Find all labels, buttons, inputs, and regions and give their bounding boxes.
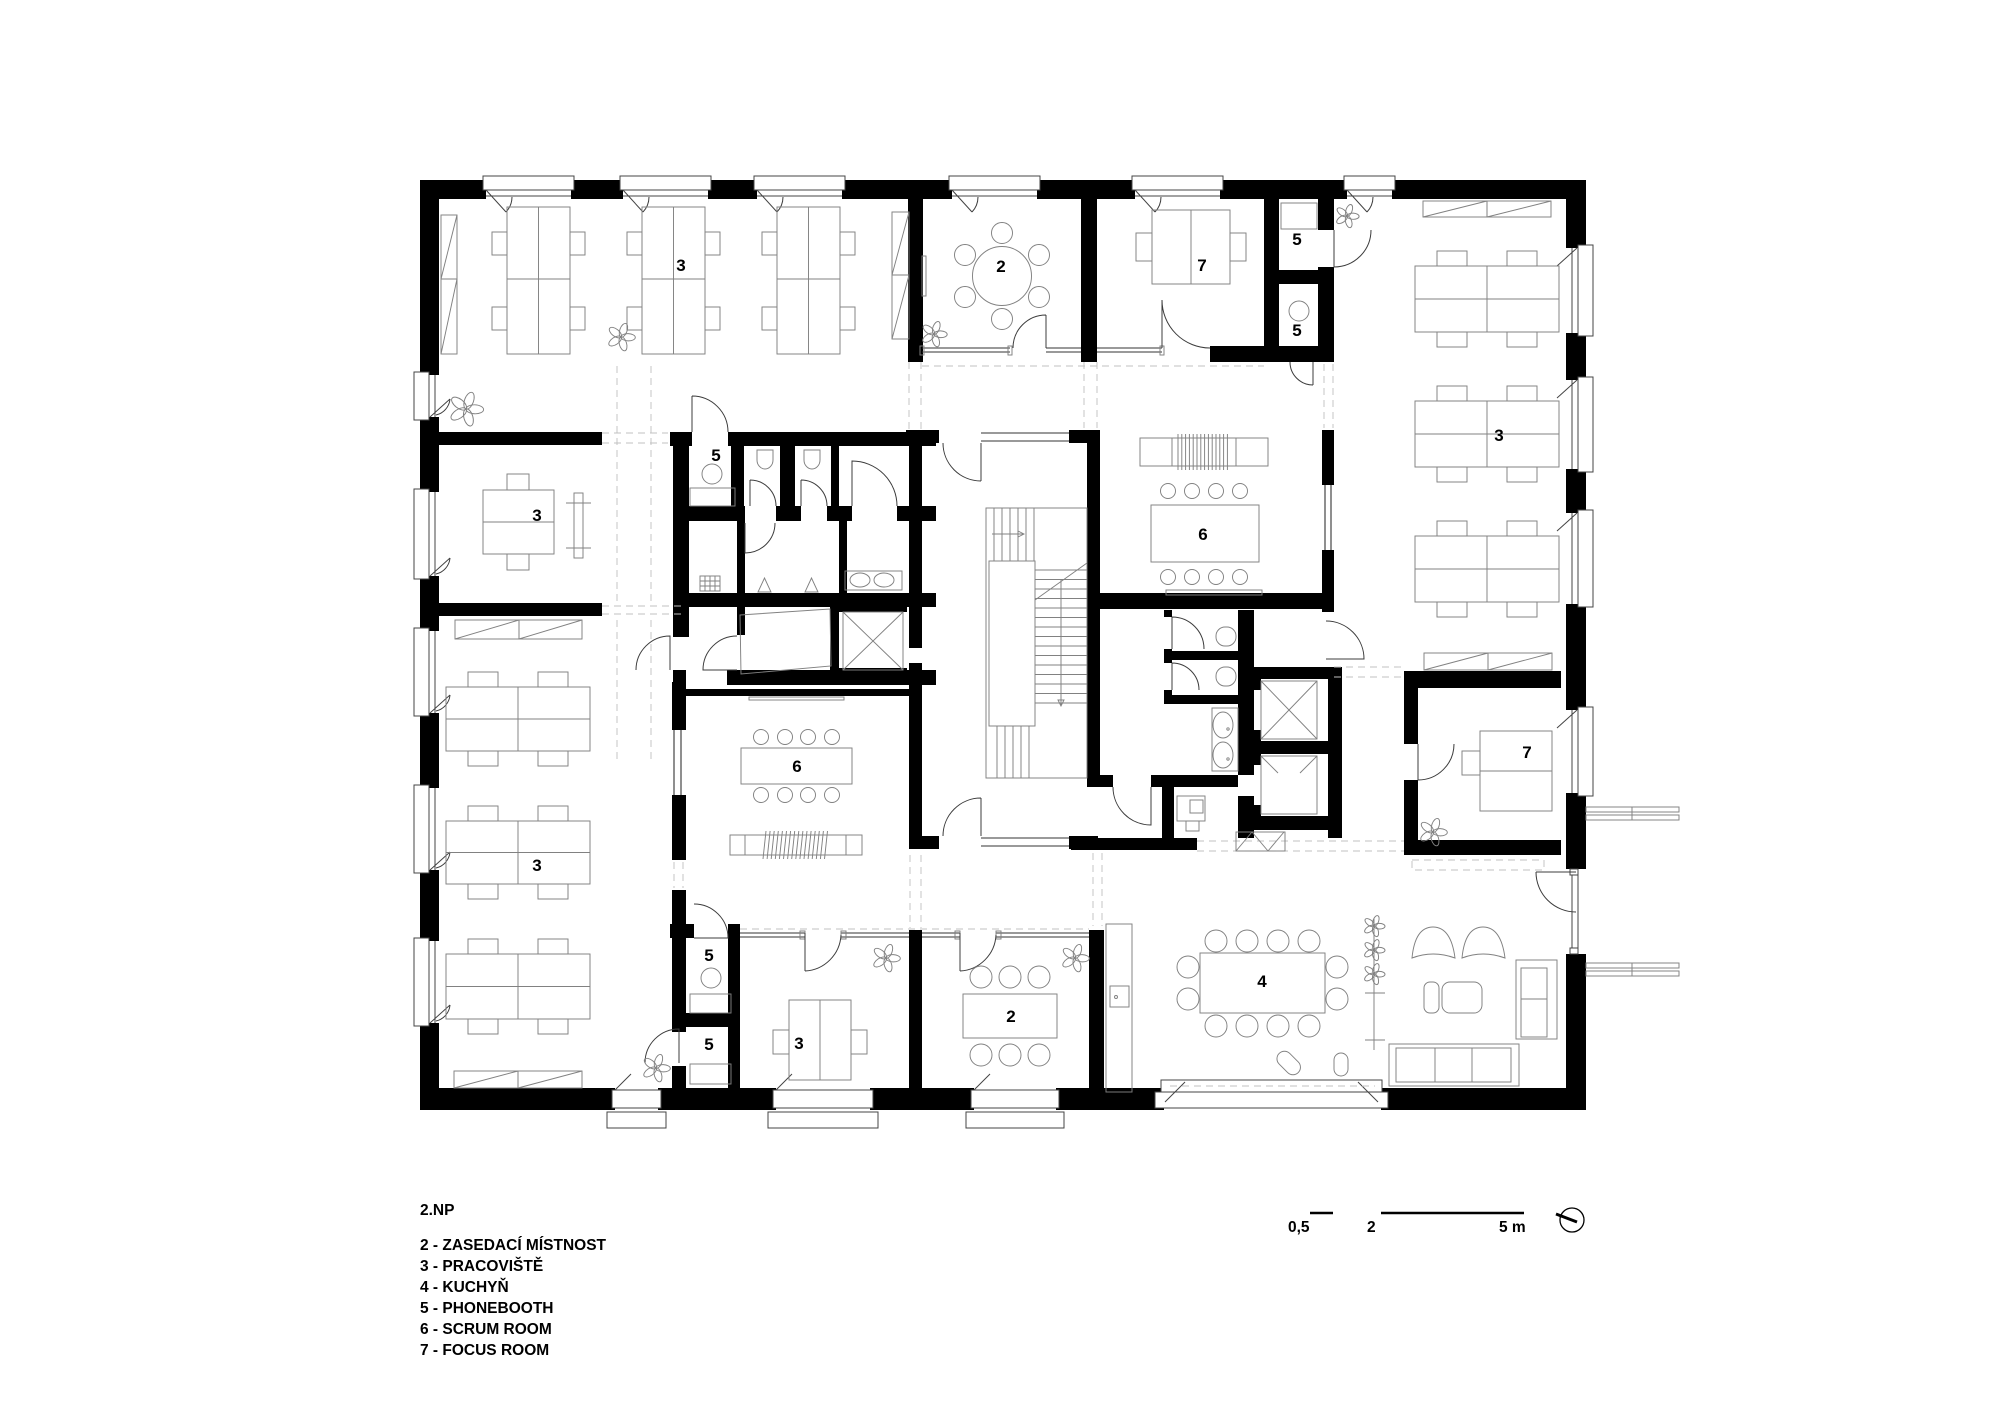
svg-text:5 m: 5 m xyxy=(1499,1219,1526,1236)
svg-text:3: 3 xyxy=(532,856,541,875)
svg-text:3: 3 xyxy=(532,506,541,525)
svg-text:2: 2 xyxy=(1006,1007,1015,1026)
svg-text:6: 6 xyxy=(1198,525,1207,544)
svg-text:7 - FOCUS ROOM: 7 - FOCUS ROOM xyxy=(420,1342,549,1359)
svg-text:5: 5 xyxy=(704,946,713,965)
svg-text:5 - PHONEBOOTH: 5 - PHONEBOOTH xyxy=(420,1300,553,1317)
svg-text:5: 5 xyxy=(711,446,720,465)
svg-text:5: 5 xyxy=(1292,230,1301,249)
svg-text:3: 3 xyxy=(1494,426,1503,445)
svg-text:0,5: 0,5 xyxy=(1288,1219,1310,1236)
svg-text:7: 7 xyxy=(1522,743,1531,762)
svg-text:5: 5 xyxy=(1292,321,1301,340)
svg-text:3 - PRACOVIŠTĚ: 3 - PRACOVIŠTĚ xyxy=(420,1257,543,1275)
svg-text:7: 7 xyxy=(1197,256,1206,275)
svg-text:6 - SCRUM ROOM: 6 - SCRUM ROOM xyxy=(420,1321,552,1338)
svg-text:2.NP: 2.NP xyxy=(420,1202,454,1219)
svg-text:5: 5 xyxy=(704,1035,713,1054)
svg-text:6: 6 xyxy=(792,757,801,776)
svg-text:3: 3 xyxy=(676,256,685,275)
svg-text:2 - ZASEDACÍ MÍSTNOST: 2 - ZASEDACÍ MÍSTNOST xyxy=(420,1237,607,1254)
svg-text:3: 3 xyxy=(794,1034,803,1053)
svg-text:4: 4 xyxy=(1257,972,1267,991)
svg-text:2: 2 xyxy=(996,257,1005,276)
svg-text:4 - KUCHYŇ: 4 - KUCHYŇ xyxy=(420,1278,509,1296)
svg-text:2: 2 xyxy=(1367,1219,1376,1236)
